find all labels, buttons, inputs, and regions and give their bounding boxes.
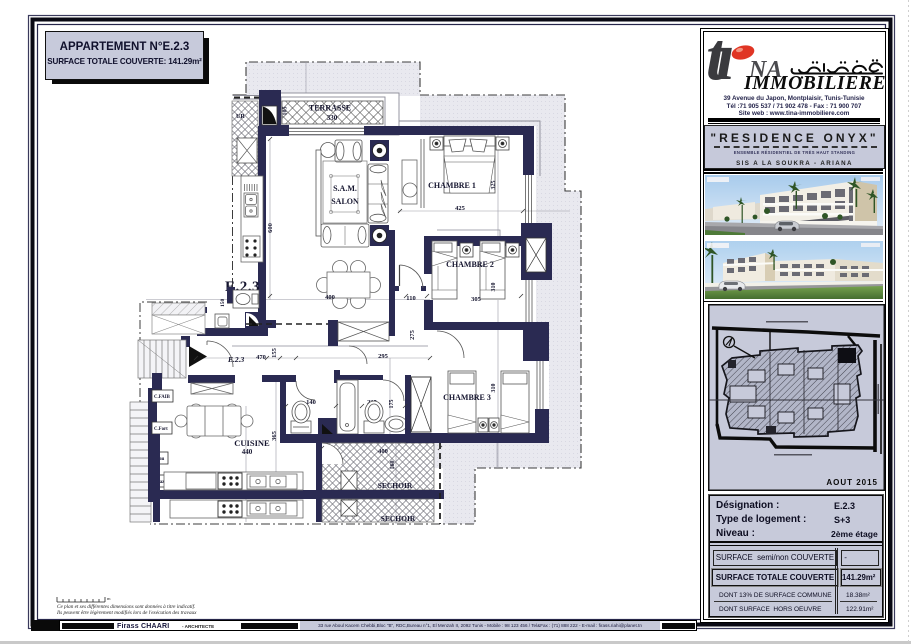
svg-text:SALON: SALON bbox=[331, 197, 359, 206]
svg-text:SECHOIR: SECHOIR bbox=[381, 514, 416, 523]
svg-text:440: 440 bbox=[242, 448, 253, 456]
svg-text:275: 275 bbox=[409, 329, 416, 340]
svg-text:140: 140 bbox=[306, 399, 316, 406]
svg-text:S.A.M.: S.A.M. bbox=[333, 184, 357, 193]
svg-text:CHAMBRE 2: CHAMBRE 2 bbox=[446, 260, 494, 269]
svg-text:110: 110 bbox=[406, 295, 415, 302]
svg-text:400: 400 bbox=[325, 294, 335, 301]
svg-text:CHAMBRE 3: CHAMBRE 3 bbox=[443, 393, 491, 402]
svg-text:310: 310 bbox=[491, 283, 497, 292]
svg-text:105: 105 bbox=[283, 107, 289, 116]
svg-text:m: m bbox=[107, 596, 111, 601]
svg-text:365: 365 bbox=[271, 430, 278, 441]
svg-text:305: 305 bbox=[471, 296, 482, 303]
svg-text:400: 400 bbox=[378, 448, 388, 455]
svg-text:CUISINE: CUISINE bbox=[234, 438, 270, 448]
svg-text:425: 425 bbox=[455, 205, 466, 212]
svg-text:310: 310 bbox=[491, 384, 497, 393]
svg-text:160: 160 bbox=[390, 461, 396, 470]
svg-text:470: 470 bbox=[256, 354, 266, 361]
svg-text:TERRASSE: TERRASSE bbox=[309, 104, 351, 113]
svg-text:C.Fort: C.Fort bbox=[154, 427, 168, 432]
svg-text:CHAMBRE 1: CHAMBRE 1 bbox=[428, 181, 476, 190]
svg-text:E.2.3: E.2.3 bbox=[227, 355, 245, 364]
svg-text:155: 155 bbox=[271, 347, 278, 358]
svg-text:600: 600 bbox=[267, 223, 274, 233]
svg-text:325: 325 bbox=[491, 181, 497, 190]
svg-text:150: 150 bbox=[220, 299, 226, 308]
svg-text:175: 175 bbox=[389, 400, 395, 409]
svg-text:AOUT 2015: AOUT 2015 bbox=[826, 478, 878, 487]
svg-text:330: 330 bbox=[327, 114, 338, 122]
svg-text:C.FAIB: C.FAIB bbox=[154, 395, 171, 400]
svg-text:UR: UR bbox=[236, 114, 245, 120]
svg-text:SECHOIR: SECHOIR bbox=[378, 481, 413, 490]
svg-text:295: 295 bbox=[378, 353, 389, 360]
